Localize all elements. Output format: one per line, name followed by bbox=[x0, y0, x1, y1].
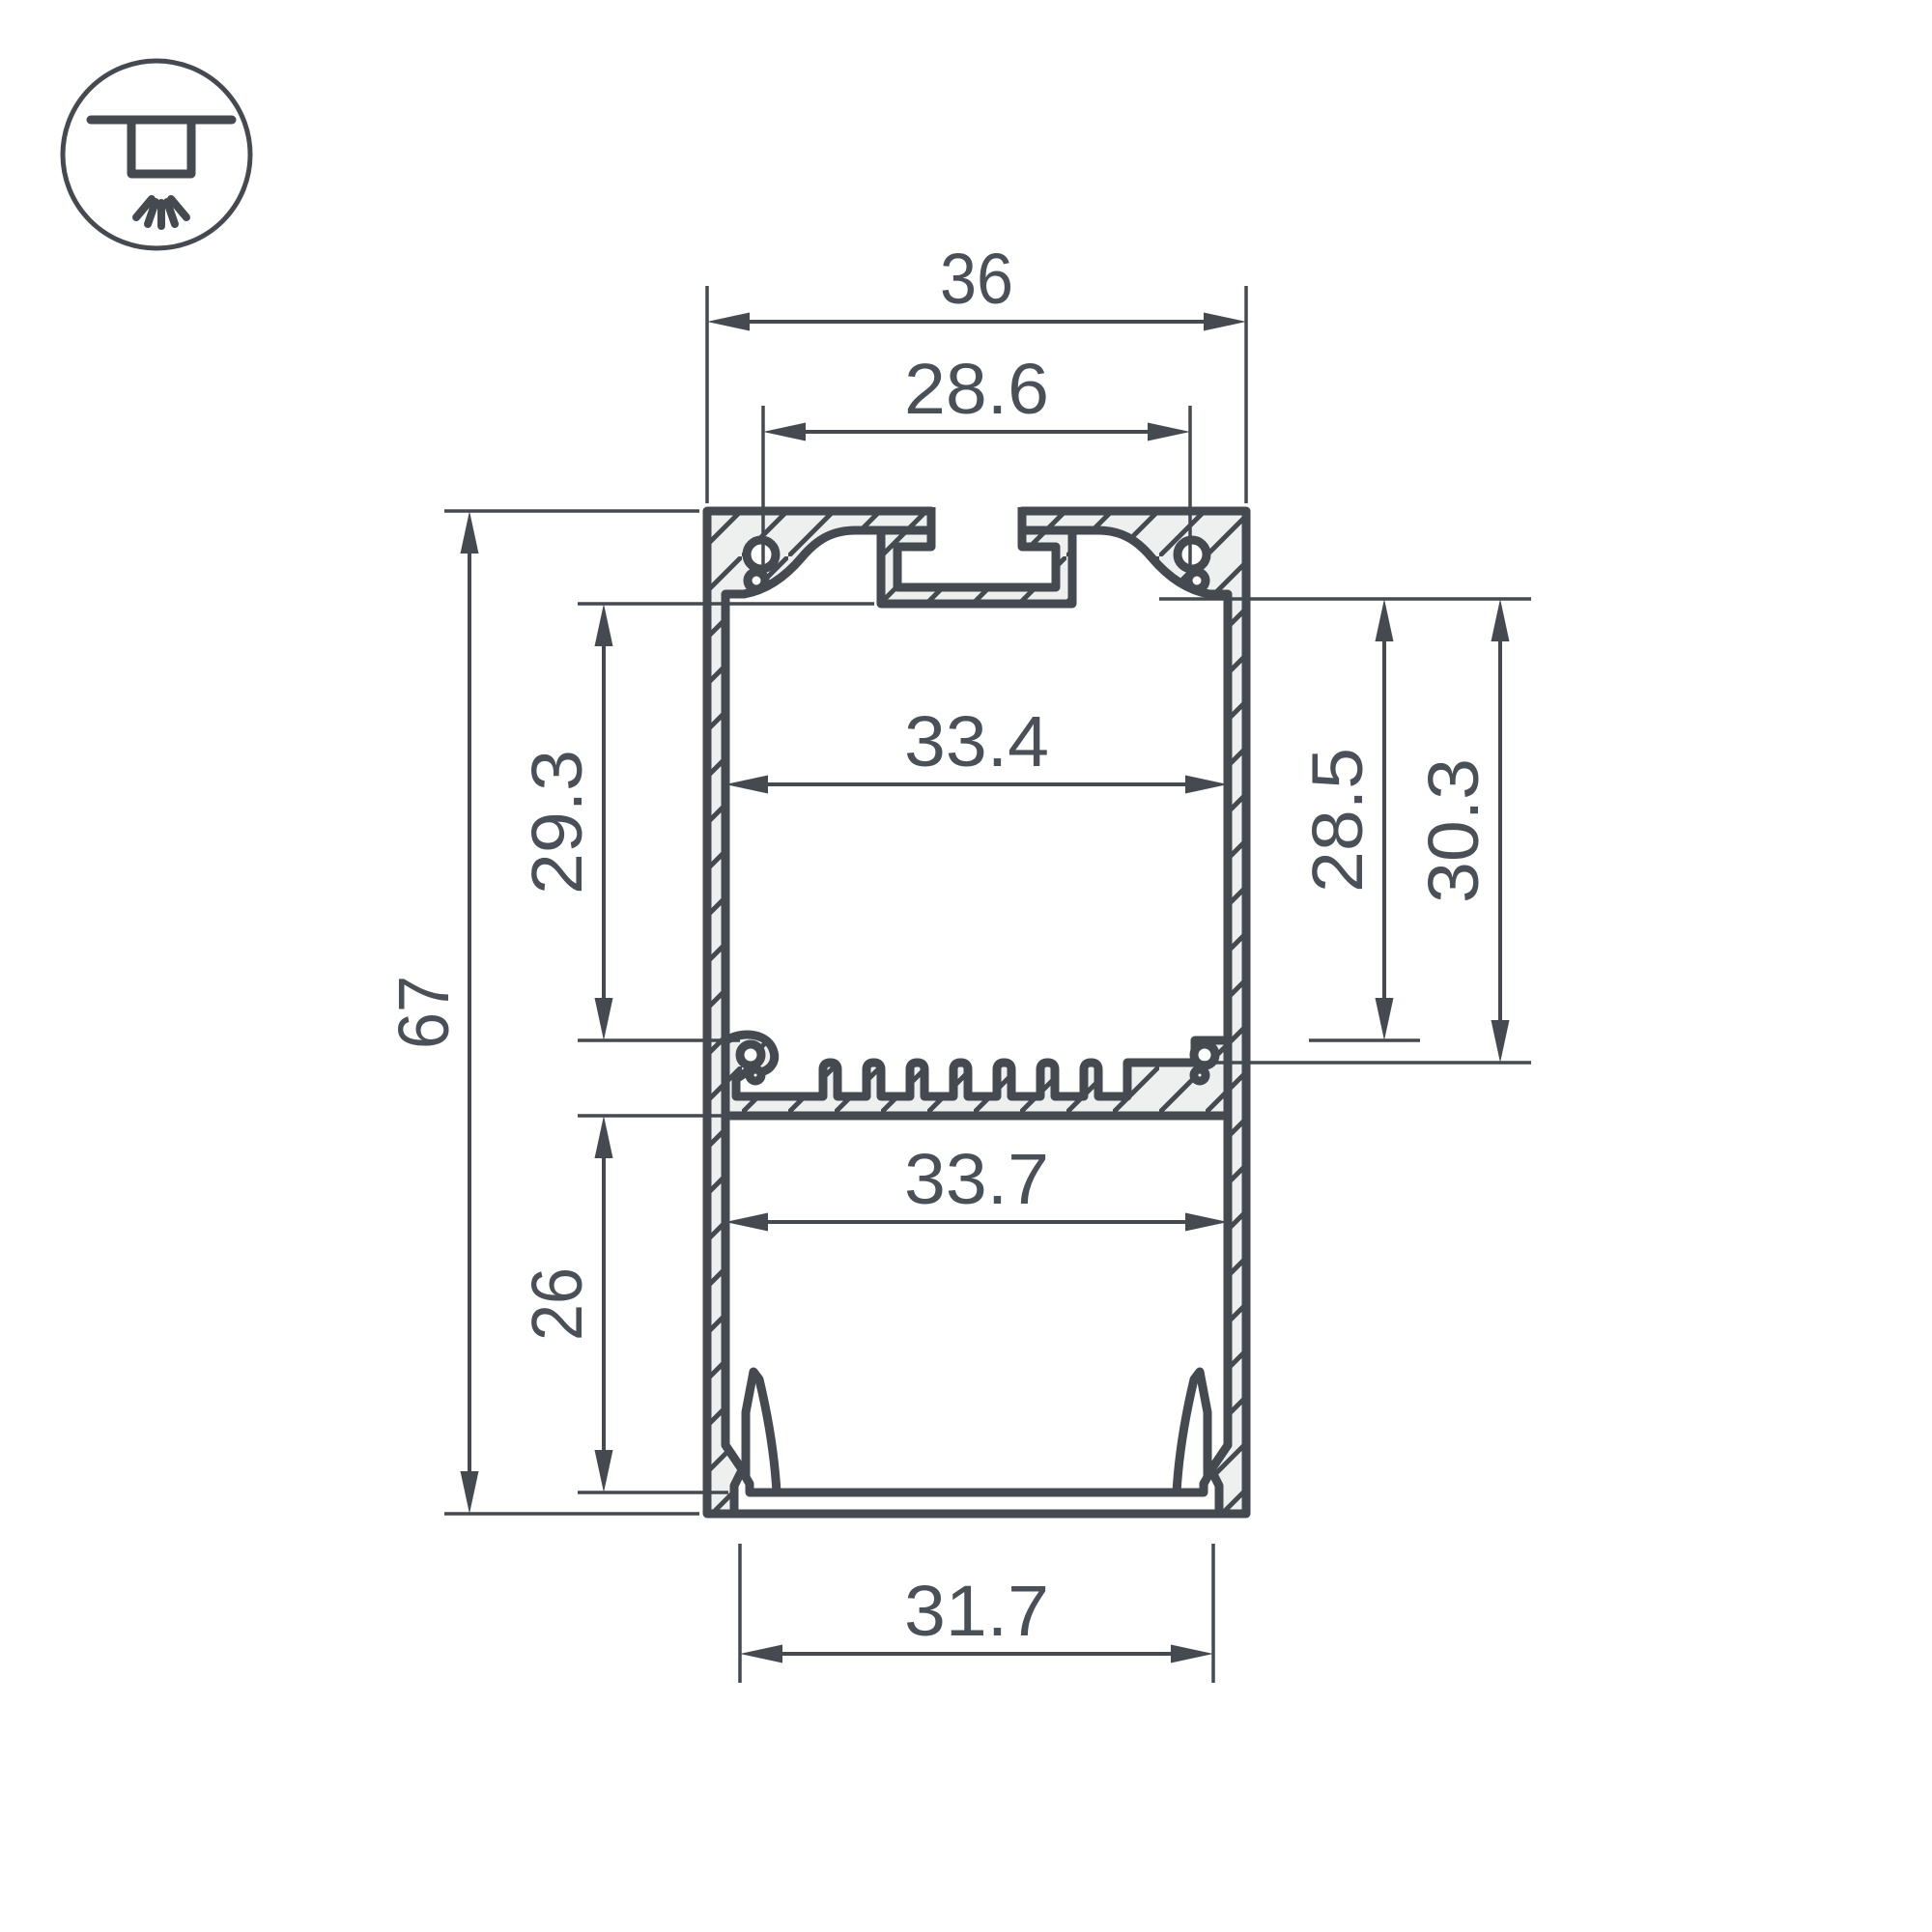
dim-overall-height: 67 bbox=[384, 976, 464, 1049]
dim-upper-cavity-width: 33.4 bbox=[904, 701, 1049, 781]
diffuser-spring-left bbox=[746, 1372, 777, 1492]
profile-mid-divider bbox=[725, 1035, 1228, 1116]
dim-bottom-opening-width: 31.7 bbox=[904, 1571, 1049, 1651]
diffuser-spring-right bbox=[1177, 1372, 1207, 1492]
dim-upper-cavity-height: 29.3 bbox=[517, 750, 597, 895]
profile-drawing-svg: 36 28.6 33.4 33.7 31.7 67 29.3 26 28.5 3… bbox=[0, 0, 1932, 1932]
profile-left-wall bbox=[707, 511, 931, 1514]
screw-port-mid-left bbox=[740, 1044, 761, 1065]
dim-right-inner-height-b: 30.3 bbox=[1413, 758, 1493, 903]
screw-port-mid-right-lower bbox=[1194, 1069, 1206, 1081]
screw-port-top-right-lower bbox=[1188, 572, 1206, 589]
technical-drawing-page: 36 28.6 33.4 33.7 31.7 67 29.3 26 28.5 3… bbox=[0, 0, 1932, 1932]
icon-fixture-box bbox=[131, 122, 191, 174]
dim-right-inner-height-a: 28.5 bbox=[1297, 748, 1378, 893]
dim-overall-width: 36 bbox=[940, 239, 1013, 319]
screw-port-top-left-lower bbox=[748, 572, 765, 589]
icon-circle bbox=[63, 61, 250, 248]
screw-port-top-right bbox=[1178, 540, 1207, 569]
dim-lower-cavity-width: 33.7 bbox=[904, 1139, 1049, 1219]
dim-lower-cavity-height: 26 bbox=[517, 1267, 597, 1341]
profile-cross-section bbox=[707, 507, 1246, 1514]
screw-port-mid-left-lower bbox=[750, 1069, 761, 1081]
dim-mount-slot-span: 28.6 bbox=[904, 349, 1049, 429]
dimension-labels: 36 28.6 33.4 33.7 31.7 67 29.3 26 28.5 3… bbox=[384, 239, 1493, 1651]
profile-right-wall bbox=[1022, 511, 1246, 1514]
recessed-ceiling-light-icon bbox=[63, 61, 250, 248]
diffuser-plate bbox=[734, 1470, 1219, 1514]
screw-port-top-left bbox=[747, 540, 776, 569]
icon-light-rays bbox=[136, 199, 186, 226]
